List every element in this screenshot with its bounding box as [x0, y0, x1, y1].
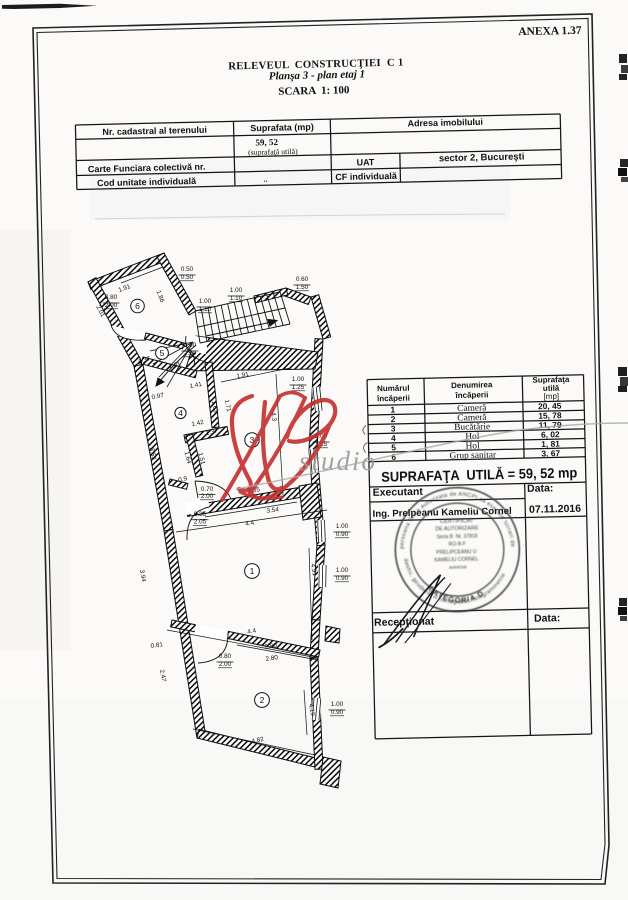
svg-text:(suprafaţă utilă): (suprafaţă utilă)	[248, 147, 298, 157]
svg-text:0.50: 0.50	[181, 274, 194, 281]
svg-text:0.80: 0.80	[219, 653, 232, 660]
svg-text:1.00: 1.00	[331, 701, 344, 708]
svg-text:0.85: 0.85	[194, 511, 207, 518]
svg-text:PRELIPCEANU U: PRELIPCEANU U	[436, 549, 477, 556]
svg-text:KAMELIU CORNEL: KAMELIU CORNEL	[434, 557, 479, 564]
svg-text:Denumirea: Denumirea	[451, 380, 493, 390]
svg-text:..: ..	[263, 177, 267, 184]
svg-text:încăperii: încăperii	[376, 394, 410, 404]
svg-text:2.00: 2.00	[219, 661, 232, 668]
svg-text:2.00: 2.00	[105, 302, 118, 309]
svg-text:6: 6	[391, 452, 396, 462]
svg-text:1.25: 1.25	[292, 384, 305, 391]
svg-text:0.70: 0.70	[201, 486, 214, 493]
svg-text:SCARA 1: 100: SCARA 1: 100	[278, 84, 350, 98]
svg-text:DE AUTORIZARE: DE AUTORIZARE	[435, 526, 479, 533]
svg-text:1.10: 1.10	[230, 295, 243, 302]
svg-text:Data:: Data:	[527, 482, 554, 495]
svg-text:0.80: 0.80	[105, 294, 118, 301]
svg-text:[mp]: [mp]	[543, 392, 559, 401]
svg-text:Data:: Data:	[534, 612, 561, 625]
svg-text:6: 6	[135, 301, 140, 311]
svg-text:4.4: 4.4	[245, 519, 255, 527]
svg-text:ANEXA 1.37: ANEXA 1.37	[518, 25, 582, 38]
svg-text:Seria B Nr. 37818: Seria B Nr. 37818	[437, 534, 478, 541]
svg-text:1.50: 1.50	[296, 284, 309, 291]
svg-text:07.11.2016: 07.11.2016	[529, 503, 581, 516]
svg-text:RO-B-F: RO-B-F	[449, 541, 466, 547]
svg-text:CERTIFICAT: CERTIFICAT	[440, 518, 474, 525]
svg-text:2.10: 2.10	[184, 350, 197, 357]
svg-text:59, 52: 59, 52	[255, 137, 278, 148]
svg-text:2: 2	[260, 695, 265, 705]
svg-text:2.05: 2.05	[194, 519, 207, 526]
svg-text:1.00: 1.00	[230, 287, 243, 294]
svg-text:4: 4	[178, 408, 183, 418]
svg-text:3, 67: 3, 67	[541, 448, 560, 458]
svg-text:Planşa 3 - plan etaj 1: Planşa 3 - plan etaj 1	[269, 68, 366, 82]
svg-text:0.90: 0.90	[184, 342, 197, 349]
svg-text:Suprafata (mp): Suprafata (mp)	[250, 122, 314, 133]
svg-text:0.90: 0.90	[336, 575, 349, 582]
svg-text:sector 2, Bucureşti: sector 2, Bucureşti	[439, 151, 525, 164]
svg-text:1.10: 1.10	[199, 306, 212, 313]
svg-text:1.00: 1.00	[292, 376, 305, 383]
svg-text:CF individuală: CF individuală	[335, 171, 398, 182]
svg-text:Executant: Executant	[372, 486, 423, 499]
svg-text:UAT: UAT	[356, 157, 375, 167]
svg-text:0.60: 0.60	[296, 276, 309, 283]
svg-text:1.00: 1.00	[336, 523, 349, 530]
svg-text:autorizat: autorizat	[449, 564, 467, 569]
svg-text:Numărul: Numărul	[377, 384, 410, 394]
svg-text:1.00: 1.00	[199, 298, 212, 305]
svg-text:Grup sanitar: Grup sanitar	[449, 450, 497, 461]
svg-text:0.90: 0.90	[336, 531, 349, 538]
svg-text:0.50: 0.50	[181, 266, 194, 273]
svg-text:5: 5	[160, 348, 165, 358]
svg-text:0.90: 0.90	[331, 709, 344, 716]
svg-text:2.00: 2.00	[201, 493, 214, 500]
svg-text:Adresa imobilului: Adresa imobilului	[407, 117, 483, 129]
svg-text:1.00: 1.00	[336, 567, 349, 574]
svg-text:1: 1	[250, 566, 255, 576]
svg-text:încăperii: încăperii	[454, 390, 488, 400]
